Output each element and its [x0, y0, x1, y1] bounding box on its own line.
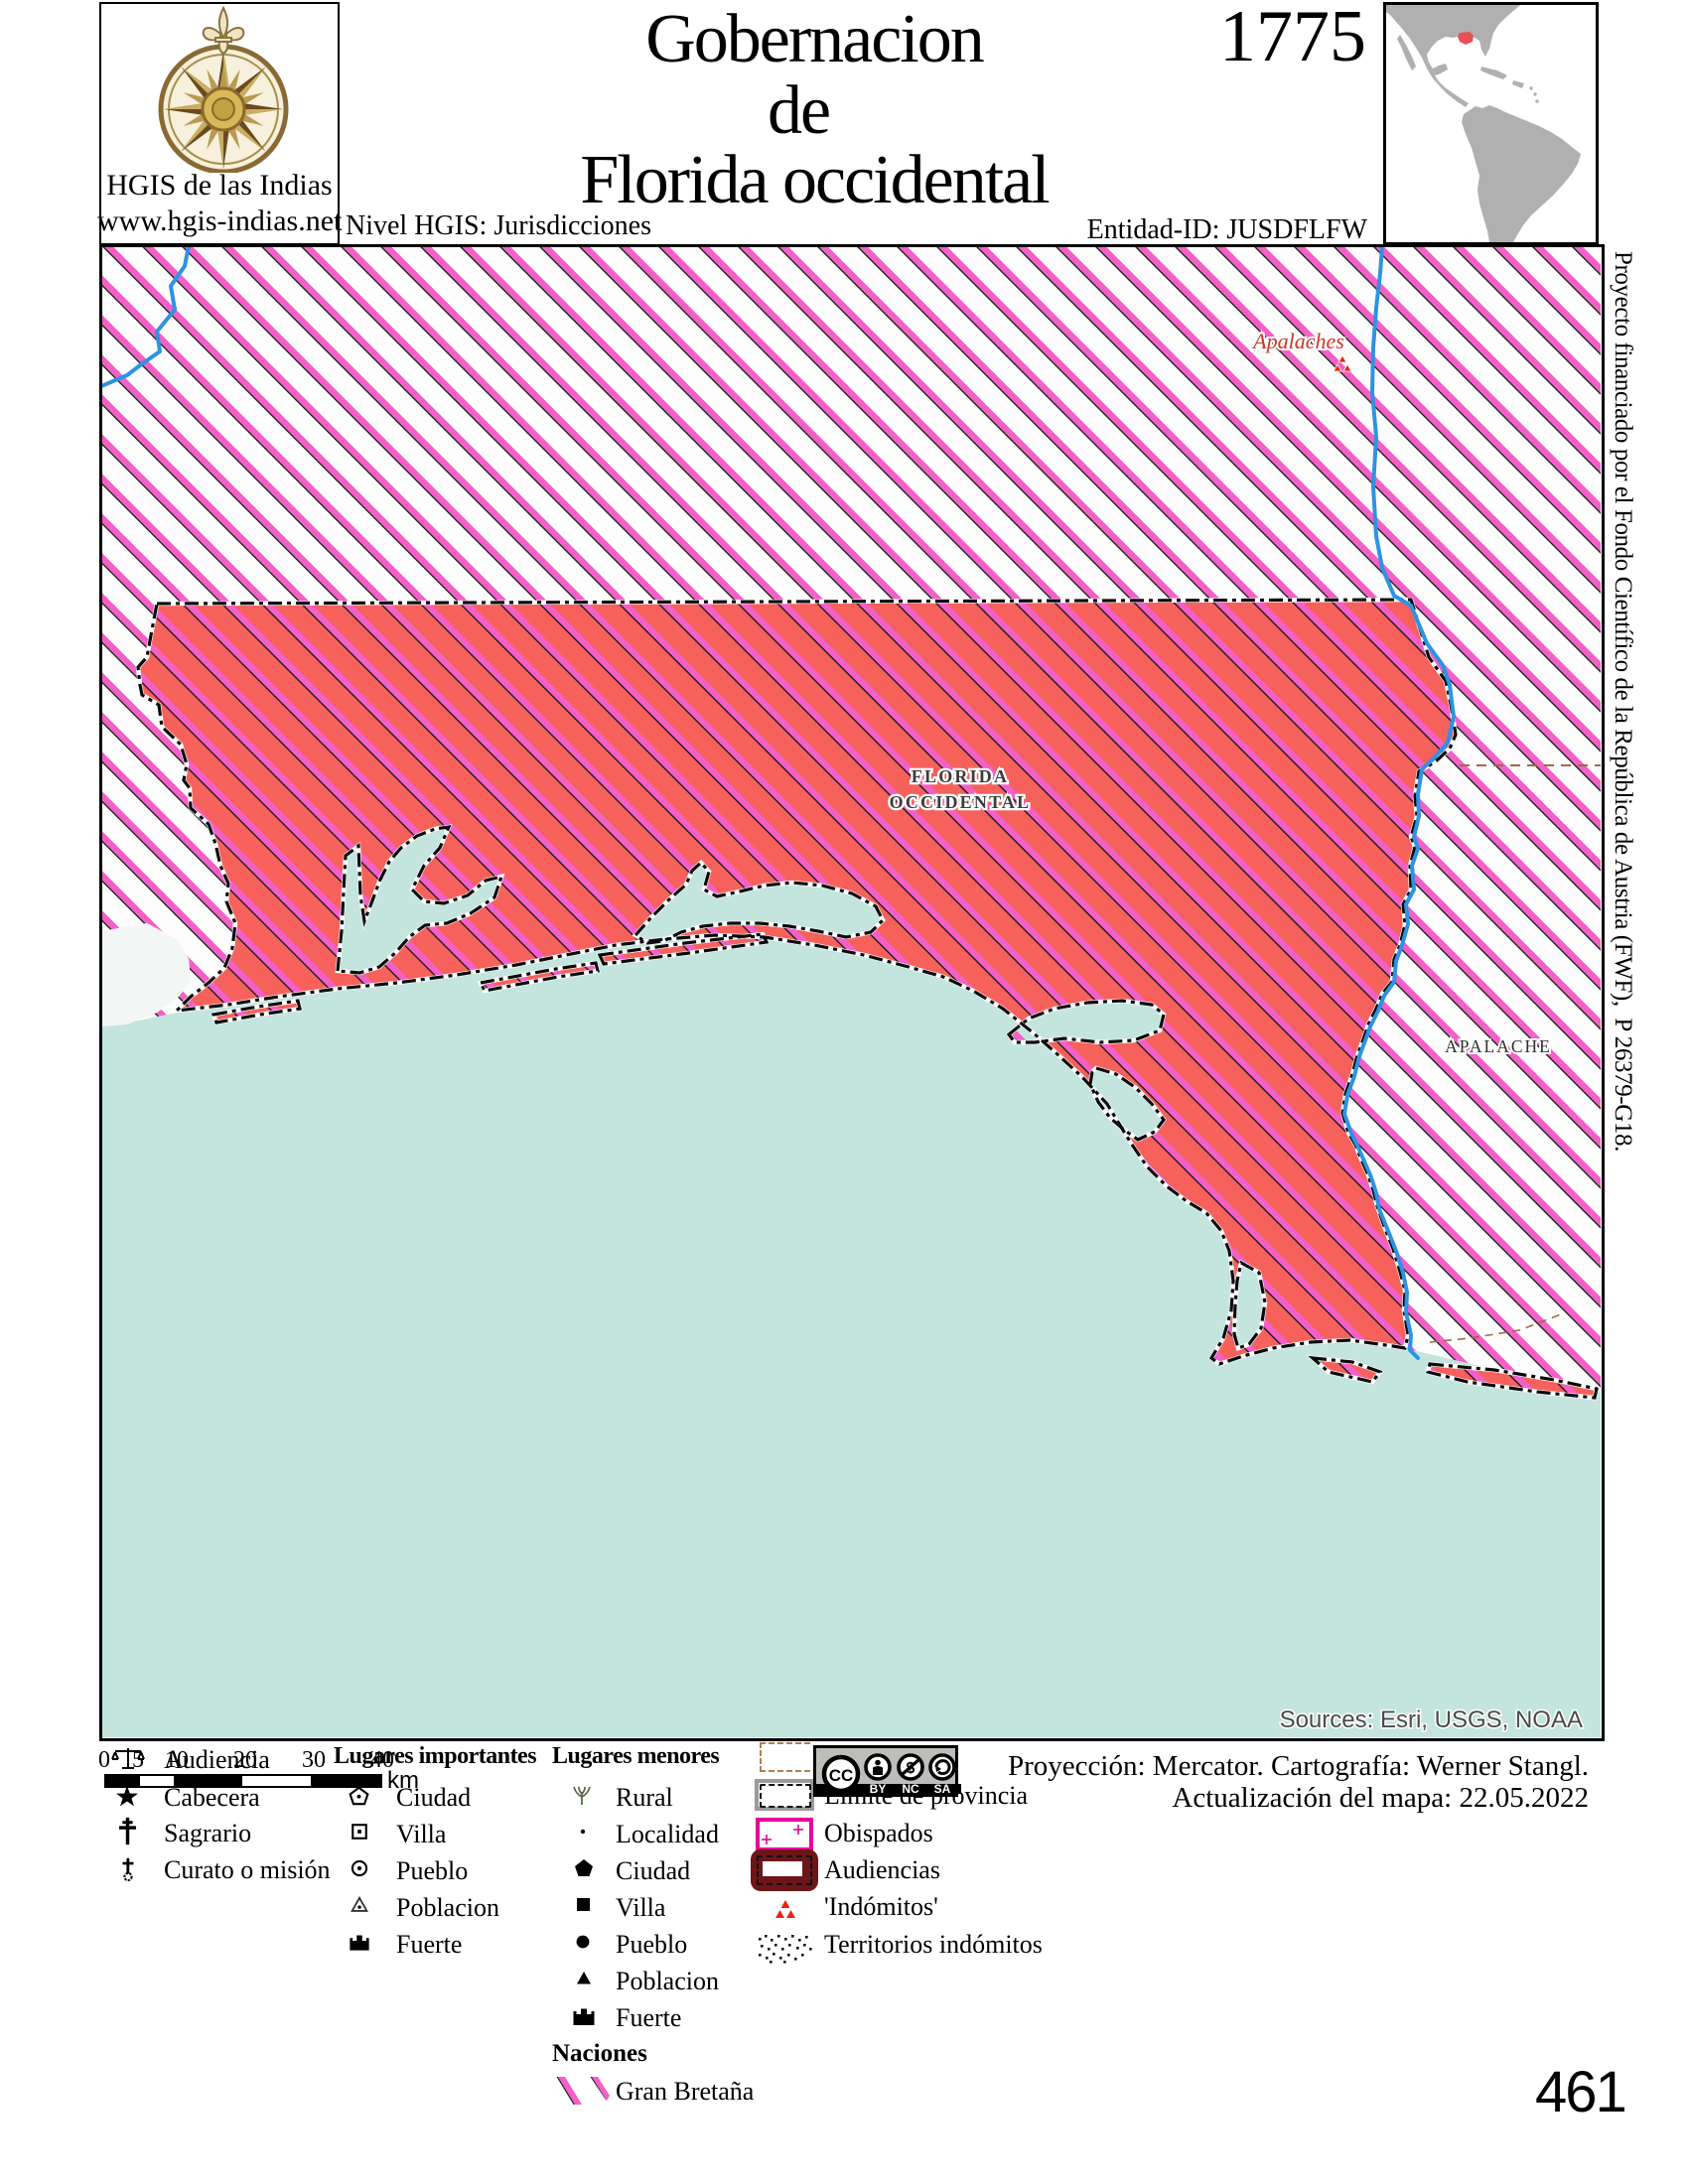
svg-text:FLORIDA: FLORIDA	[912, 766, 1009, 786]
svg-text:Apalaches: Apalaches	[1251, 329, 1344, 353]
svg-text:APALACHE: APALACHE	[1445, 1036, 1552, 1056]
svg-text:CC: CC	[829, 1766, 854, 1785]
svg-text:BY: BY	[870, 1782, 887, 1794]
svg-text:Sources: Esri, USGS, NOAA: Sources: Esri, USGS, NOAA	[1280, 1706, 1583, 1733]
svg-text:OCCIDENTAL: OCCIDENTAL	[890, 792, 1032, 812]
